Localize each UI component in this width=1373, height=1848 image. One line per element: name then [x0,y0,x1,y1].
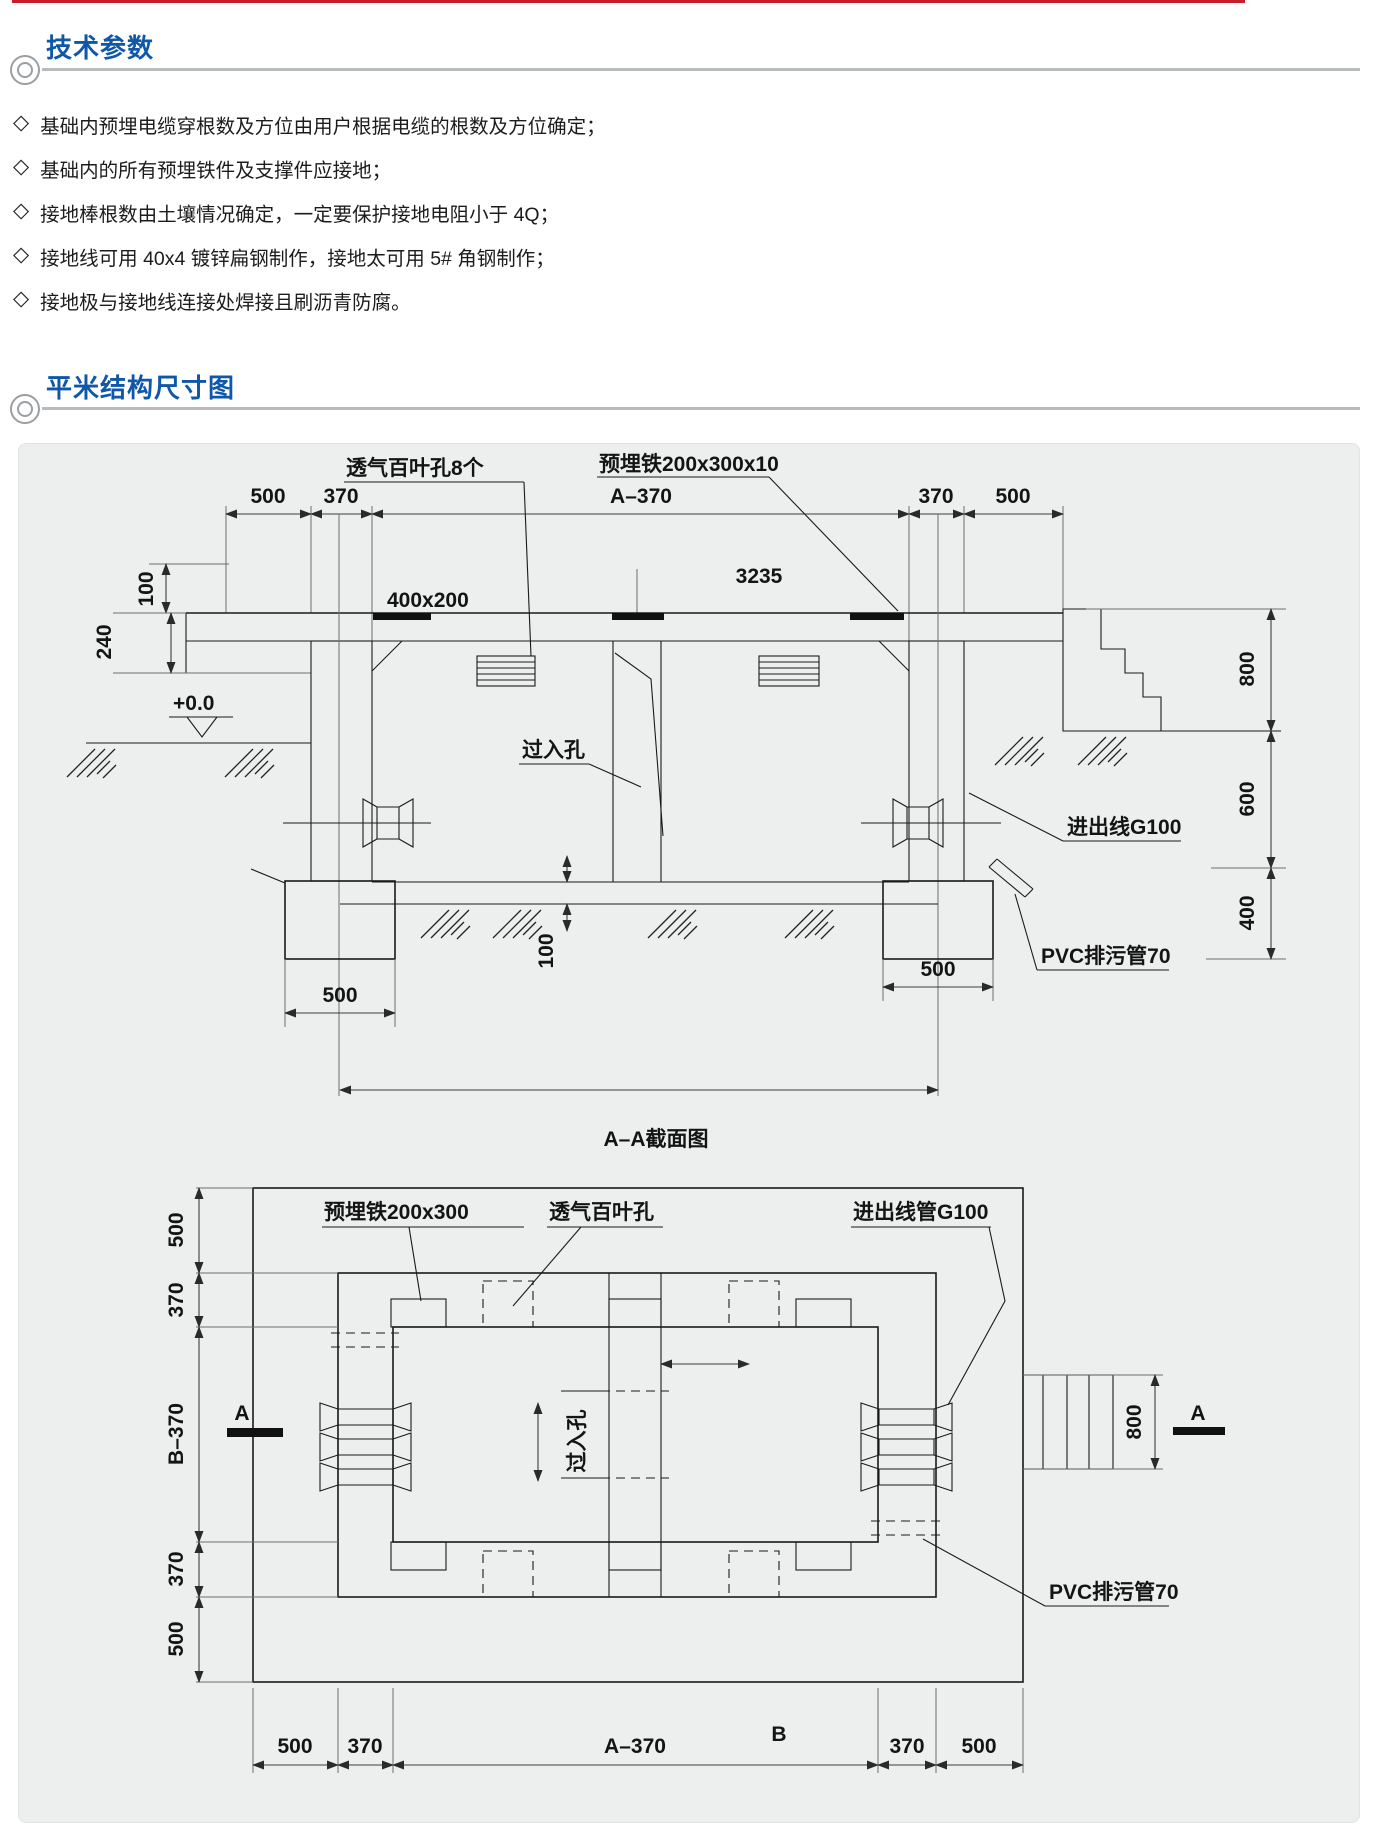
dim-label: B–370 [165,1403,188,1465]
list-item: ◇基础内的所有预埋铁件及支撑件应接地； [13,154,1213,183]
louver-callout: 透气百叶孔8个 [346,456,485,480]
bullet-text: 接地极与接地线连接处焊接且刷沥青防腐。 [40,286,411,315]
plan-wall-inner [393,1327,878,1542]
title-rule-2 [42,407,1360,410]
dim-label: 500 [961,1735,996,1758]
pvc-pipe-stub [989,859,1033,897]
list-item: ◇接地极与接地线连接处焊接且刷沥青防腐。 [13,286,1213,315]
dim-label: 400 [1236,895,1259,930]
manhole-label: 过入孔 [565,1410,589,1473]
list-item: ◇接地线可用 40x4 镀锌扁钢制作，接地太可用 5# 角钢制作； [13,242,1213,271]
section-view: 500 370 A–370 370 500 3235 [67,452,1286,1151]
diamond-bullet-icon: ◇ [13,110,29,136]
section-callouts: 透气百叶孔8个 预埋铁200x300x10 过入孔 进出线G100 PVC排污管… [344,452,1181,970]
plan-caption-b: B [771,1723,786,1746]
drawing-panel: 500 370 A–370 370 500 3235 [18,443,1360,1823]
embedded-plate [612,613,664,620]
diamond-bullet-icon: ◇ [13,242,29,268]
plan-bottom-dim-chain: 500 370 A–370 370 500 [253,1688,1023,1773]
manhole-callout: 过入孔 [522,738,585,762]
dim-label: 370 [347,1735,382,1758]
embedded-plate [373,613,431,620]
pvc-callout: PVC排污管70 [1041,944,1171,968]
dim-label: 800 [1236,651,1259,686]
plan-manhole: 过入孔 [538,1364,749,1481]
plan-embedded-plates [391,1299,851,1570]
dim-label: 240 [93,624,116,659]
bullet-text: 基础内的所有预埋铁件及支撑件应接地； [40,154,391,183]
cable-callout: 进出线G100 [1067,815,1181,839]
section-cable-pipes [283,799,1001,847]
plan-louvers [483,1281,779,1597]
top-red-divider [12,0,1245,3]
dim-label: 500 [165,1212,188,1247]
dim-label: 100 [135,571,158,606]
list-item: ◇基础内预埋电缆穿根数及方位由用户根据电缆的根数及方位确定； [13,110,1213,139]
dim-label: 370 [889,1735,924,1758]
dim-label: 800 [1123,1404,1146,1439]
left-footing [285,881,395,959]
title-rule-1 [42,68,1360,71]
dim-label: 500 [322,984,357,1007]
plate-callout: 预埋铁200x300 [324,1200,469,1224]
dim-label: A–370 [604,1735,666,1758]
dim-label: 500 [920,958,955,981]
louver-callout: 透气百叶孔 [549,1200,654,1224]
plan-callouts: 预埋铁200x300 透气百叶孔 进出线管G100 PVC排污管70 [322,1200,1179,1606]
section-marker-label: A [234,1402,249,1425]
diamond-bullet-icon: ◇ [13,198,29,224]
dim-label: 500 [995,485,1030,508]
plan-outer-foundation [253,1188,1023,1682]
section-caption: A–A截面图 [603,1128,708,1151]
list-item: ◇接地棒根数由土壤情况确定，一定要保护接地电阻小于 4Q； [13,198,1213,227]
bullet-text: 基础内预埋电缆穿根数及方位由用户根据电缆的根数及方位确定； [40,110,606,139]
ring-icon-inner [17,401,33,417]
dim-label: 500 [165,1621,188,1656]
bullet-text: 接地棒根数由土壤情况确定，一定要保护接地电阻小于 4Q； [40,198,559,227]
dim-label: A–370 [610,485,672,508]
level-marker-icon [187,717,217,737]
parameter-list: ◇基础内预埋电缆穿根数及方位由用户根据电缆的根数及方位确定； ◇基础内的所有预埋… [13,110,1213,330]
dim-label: 600 [1236,781,1259,816]
plate-size-label: 400x200 [387,589,469,612]
plate-callout: 预埋铁200x300x10 [599,452,779,476]
manhole-break-line [615,653,663,836]
section-marker-label: A [1190,1402,1205,1425]
pvc-callout: PVC排污管70 [1049,1580,1179,1604]
plan-view: 过入孔 [165,1188,1225,1773]
dim-label: 100 [535,933,558,968]
section-bottom-dims: 500 500 100 [285,856,993,1090]
embedded-plate [850,613,904,620]
plan-hidden-pipes [331,1333,943,1535]
plan-steps-extension: 800 [1023,1375,1163,1469]
vent-louver [477,656,535,686]
dim-label: 370 [165,1551,188,1586]
dim-label: 500 [250,485,285,508]
right-brick-wall [909,641,964,881]
level-label: +0.0 [173,692,214,715]
dim-total-3235: 3235 [736,565,783,588]
conduit-callout: 进出线管G100 [853,1200,988,1224]
dim-label: 500 [277,1735,312,1758]
section-floor-footings [251,859,1033,959]
section-title-params: 技术参数 [46,28,154,65]
section-left-dims: 100 240 +0.0 [86,564,311,743]
plan-section-markers: A A [227,1402,1225,1437]
diamond-bullet-icon: ◇ [13,154,29,180]
bullet-text: 接地线可用 40x4 镀锌扁钢制作，接地太可用 5# 角钢制作； [40,242,555,271]
ring-icon-inner [17,62,33,78]
section-title-structure: 平米结构尺寸图 [46,368,235,405]
dim-label: 370 [323,485,358,508]
vent-louver [759,656,819,686]
engineering-drawing: 500 370 A–370 370 500 3235 [19,444,1359,1822]
diamond-bullet-icon: ◇ [13,286,29,312]
plan-wall-outer [338,1273,936,1597]
dim-label: 370 [165,1282,188,1317]
datasheet-page: 技术参数 ◇基础内预埋电缆穿根数及方位由用户根据电缆的根数及方位确定； ◇基础内… [0,0,1373,1848]
dim-label: 370 [918,485,953,508]
section-right-dim-chain: 800 600 400 [1086,609,1286,959]
